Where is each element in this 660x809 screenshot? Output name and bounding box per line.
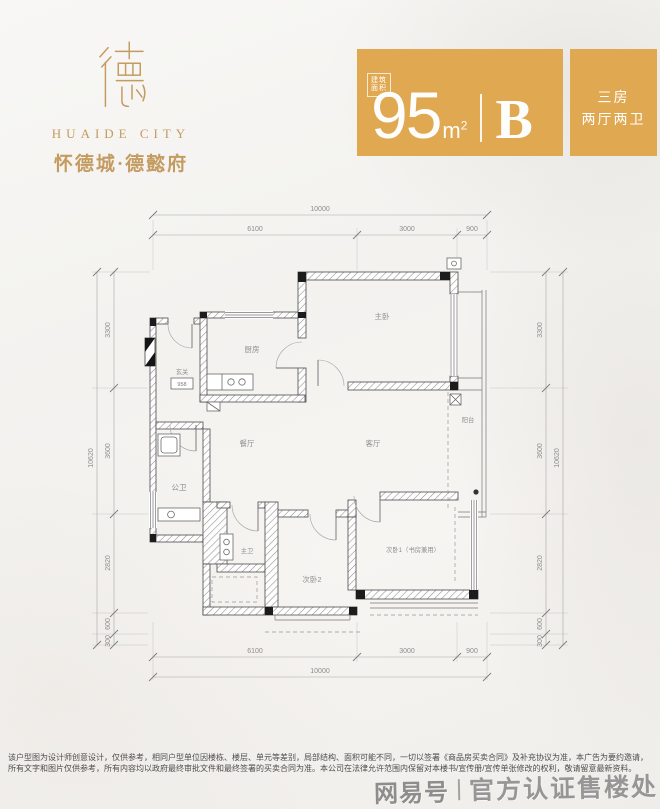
area-unit: m2 bbox=[442, 118, 467, 144]
dim-top-b: 3000 bbox=[399, 226, 415, 233]
dim-right-e: 300 bbox=[537, 635, 544, 647]
watermark-divider bbox=[458, 779, 460, 800]
dim-top-total: 10000 bbox=[310, 206, 330, 213]
room-label-living: 客厅 bbox=[366, 438, 381, 448]
layout-line1: 三房 bbox=[598, 86, 630, 108]
dim-right-d: 600 bbox=[537, 618, 544, 630]
room-label-bedroom1: 次卧1（书房兼用） bbox=[386, 545, 440, 554]
dim-bottom-a: 6100 bbox=[247, 648, 263, 655]
brand-name-en: HUAIDE CITY bbox=[35, 126, 207, 142]
dim-bottom-c: 900 bbox=[466, 648, 478, 655]
layout-line2: 两厅两卫 bbox=[582, 108, 646, 130]
unit-area-card: 建筑 面积 95 m2 B bbox=[357, 49, 563, 156]
room-label-foyer: 玄关 bbox=[176, 367, 189, 376]
dim-left-total: 10620 bbox=[88, 448, 95, 468]
area-unit-m: m bbox=[442, 118, 460, 143]
entry-tag: 958 bbox=[177, 382, 186, 388]
room-label-balcony: 阳台 bbox=[462, 415, 475, 424]
dim-left-e: 300 bbox=[105, 635, 112, 647]
area-row: 95 m2 B bbox=[371, 89, 553, 144]
dim-bottom-total: 10000 bbox=[310, 668, 330, 675]
brand-logo: HUAIDE CITY 怀德城·德懿府 bbox=[35, 34, 207, 176]
unit-badge: 建筑 面积 95 m2 B 三房 两厅两卫 bbox=[357, 49, 657, 156]
brand-mark-icon bbox=[88, 34, 154, 120]
area-unit-sup: 2 bbox=[461, 119, 468, 133]
room-label-master: 主卧 bbox=[375, 311, 390, 321]
dim-left-d: 600 bbox=[105, 618, 112, 630]
dim-right-b: 3600 bbox=[537, 443, 544, 459]
dim-right-total: 10620 bbox=[554, 448, 561, 468]
floor-plan: 10000 6100 3000 900 6100 3000 900 10000 … bbox=[70, 192, 590, 702]
dim-bottom-b: 3000 bbox=[399, 648, 415, 655]
plan-walls bbox=[150, 272, 478, 615]
room-label-kitchen: 厨房 bbox=[245, 344, 260, 354]
flyer-page: HUAIDE CITY 怀德城·德懿府 建筑 面积 95 m2 B 三房 两厅两… bbox=[0, 0, 660, 809]
plan-fixtures bbox=[145, 258, 479, 560]
watermark-text: 官方认证售楼处 bbox=[469, 767, 659, 807]
watermark: 网易号 官方认证售楼处 bbox=[374, 767, 659, 809]
room-label-bedroom2: 次卧2 bbox=[302, 574, 321, 584]
dim-left-b: 3600 bbox=[105, 443, 112, 459]
dim-left-c: 2820 bbox=[105, 555, 112, 571]
plan-windows bbox=[149, 290, 486, 620]
area-value: 95 bbox=[371, 89, 440, 142]
watermark-source: 网易号 bbox=[374, 772, 450, 809]
unit-layout-card: 三房 两厅两卫 bbox=[570, 49, 657, 156]
unit-letter: B bbox=[495, 98, 532, 144]
room-label-dining: 餐厅 bbox=[240, 439, 255, 448]
dim-top-c: 900 bbox=[466, 226, 478, 233]
room-label-bath-left: 公卫 bbox=[172, 483, 187, 492]
dim-right-c: 2820 bbox=[537, 555, 544, 571]
brand-name-cn: 怀德城·德懿府 bbox=[35, 149, 207, 176]
dim-right-a: 3300 bbox=[537, 322, 544, 338]
room-label-bath-mid: 主卫 bbox=[241, 546, 254, 555]
dim-top-a: 6100 bbox=[247, 226, 263, 233]
badge-divider bbox=[480, 94, 482, 142]
dim-left-a: 3300 bbox=[105, 322, 112, 338]
